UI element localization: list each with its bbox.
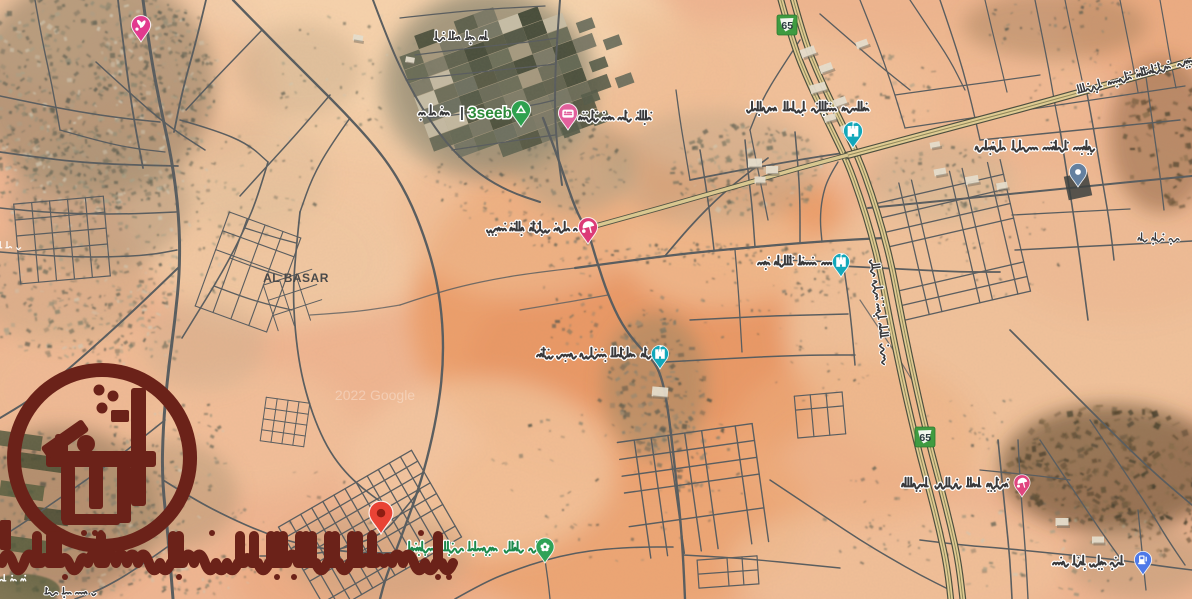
svg-text:2022 Google: 2022 Google: [335, 387, 415, 403]
svg-text:65: 65: [781, 20, 793, 32]
svg-text:|: |: [460, 104, 464, 120]
svg-text:3seeb: 3seeb: [468, 105, 512, 122]
svg-text:65: 65: [919, 432, 931, 444]
svg-text:AL BASAR: AL BASAR: [263, 271, 329, 285]
